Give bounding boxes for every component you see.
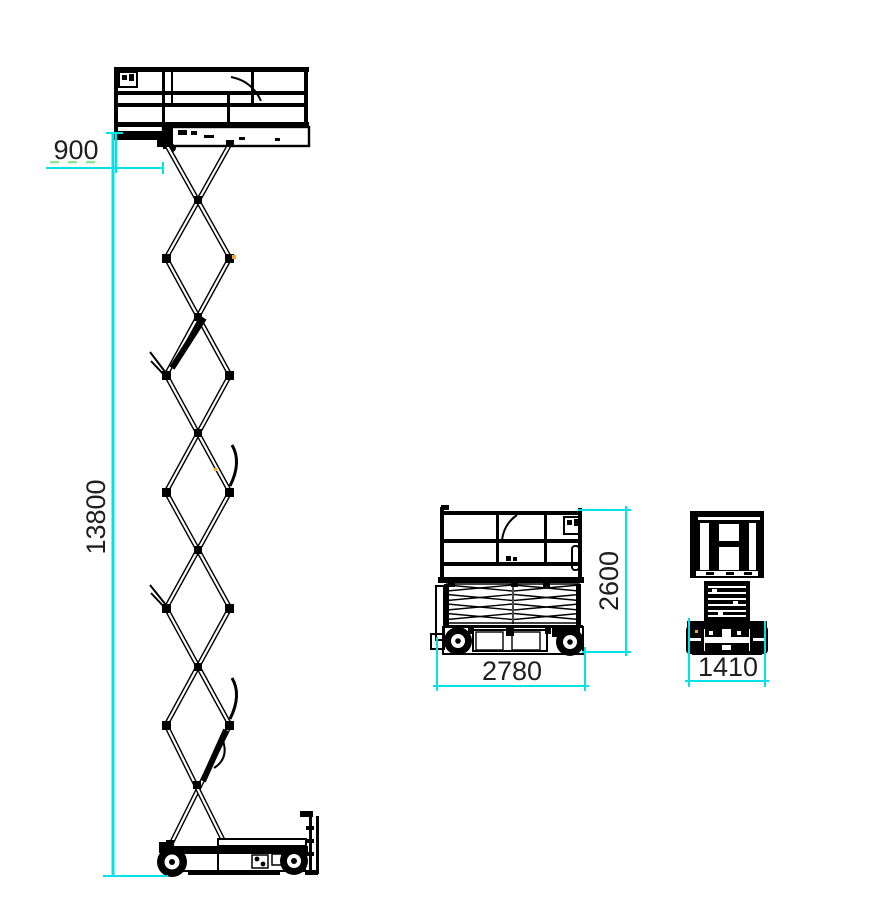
grease-point — [695, 630, 698, 633]
view-stowed-front — [686, 511, 768, 655]
dimension-13800 — [103, 133, 168, 877]
label-platform-extension: 900 — [53, 135, 98, 165]
drawing-canvas: 900 13800 2780 2600 1410 — [0, 0, 876, 924]
wheel — [556, 628, 584, 656]
platform-stowed-front — [690, 511, 764, 578]
scissor-stack-folded-front — [704, 581, 750, 621]
wheel — [157, 847, 187, 877]
chassis-stowed-side — [431, 625, 584, 656]
chassis-stowed-front — [686, 621, 768, 655]
wheel — [444, 627, 472, 655]
label-overall-width: 1410 — [698, 652, 758, 682]
scissor-arms-extended — [150, 140, 237, 848]
view-stowed-side — [431, 505, 584, 656]
grease-point — [214, 468, 217, 471]
wheel — [280, 847, 308, 875]
label-working-height: 13800 — [81, 479, 111, 554]
label-overall-length: 2780 — [482, 656, 542, 686]
platform-stowed-side — [438, 505, 584, 587]
label-stowed-height: 2600 — [594, 551, 624, 611]
grease-point — [232, 255, 236, 259]
platform-elevated — [114, 67, 309, 152]
view-elevated-side — [114, 67, 319, 877]
scissor-lift-drawing: 900 13800 2780 2600 1410 — [0, 0, 876, 924]
